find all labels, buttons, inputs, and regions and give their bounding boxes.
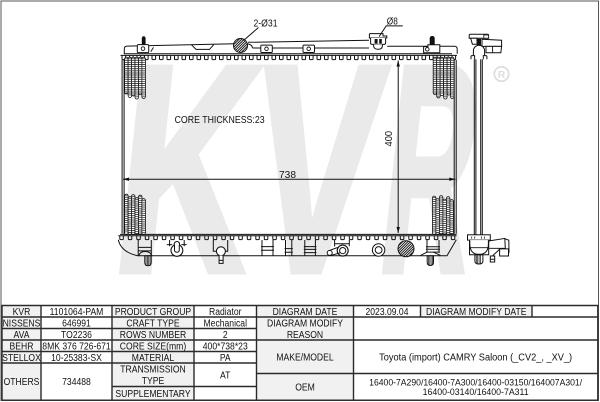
svg-text:CORE THICKNESS:23: CORE THICKNESS:23 <box>175 115 265 126</box>
svg-text:NISSENS: NISSENS <box>3 318 41 329</box>
svg-text:PA: PA <box>220 353 231 364</box>
svg-text:Mechanical: Mechanical <box>204 318 248 329</box>
svg-text:Toyota (import) CAMRY Saloon (: Toyota (import) CAMRY Saloon (_CV2_, _XV… <box>379 352 572 363</box>
svg-text:Radiator: Radiator <box>209 307 242 318</box>
svg-text:ROWS NUMBER: ROWS NUMBER <box>120 330 186 341</box>
svg-text:CORE SIZE(mm): CORE SIZE(mm) <box>120 341 186 352</box>
svg-text:400*738*23: 400*738*23 <box>203 341 248 352</box>
svg-text:STELLOX: STELLOX <box>2 353 41 364</box>
svg-text:2023.09.04: 2023.09.04 <box>366 307 409 318</box>
svg-text:2-Ø31: 2-Ø31 <box>254 18 278 30</box>
svg-text:TRANSMISSION: TRANSMISSION <box>120 364 186 375</box>
svg-text:2: 2 <box>223 330 228 341</box>
svg-text:DIAGRAM MODIFY: DIAGRAM MODIFY <box>267 319 343 330</box>
svg-text:TYPE: TYPE <box>142 376 165 387</box>
svg-text:REASON: REASON <box>287 330 323 341</box>
svg-text:TO2236: TO2236 <box>61 330 92 341</box>
svg-text:OTHERS: OTHERS <box>4 377 40 388</box>
svg-text:SUPPLEMENTARY: SUPPLEMENTARY <box>115 389 190 400</box>
svg-text:DIAGRAM MODIFY DATE: DIAGRAM MODIFY DATE <box>426 307 527 318</box>
svg-text:Ø8: Ø8 <box>387 15 398 27</box>
svg-text:AT: AT <box>220 370 230 381</box>
svg-text:KVR: KVR <box>13 307 31 318</box>
svg-text:8MK 376 726-671: 8MK 376 726-671 <box>42 341 111 352</box>
svg-text:1101064-PAM: 1101064-PAM <box>50 307 104 318</box>
svg-text:16400-03140/16400-7A311: 16400-03140/16400-7A311 <box>423 387 529 398</box>
svg-text:MATERIAL: MATERIAL <box>132 353 175 364</box>
svg-text:DIAGRAM DATE: DIAGRAM DATE <box>273 307 338 318</box>
svg-text:10-25383-SX: 10-25383-SX <box>51 353 102 364</box>
svg-text:CRAFT TYPE: CRAFT TYPE <box>126 318 179 329</box>
svg-text:PRODUCT GROUP: PRODUCT GROUP <box>115 307 192 318</box>
svg-text:738: 738 <box>279 169 296 181</box>
svg-text:BEHR: BEHR <box>10 341 34 352</box>
svg-text:OEM: OEM <box>295 382 315 393</box>
svg-text:R: R <box>498 69 506 81</box>
svg-text:646991: 646991 <box>62 318 91 329</box>
svg-text:734488: 734488 <box>62 377 91 388</box>
svg-text:MAKE/MODEL: MAKE/MODEL <box>276 352 334 363</box>
svg-text:400: 400 <box>384 131 395 147</box>
svg-text:AVA: AVA <box>14 330 30 341</box>
